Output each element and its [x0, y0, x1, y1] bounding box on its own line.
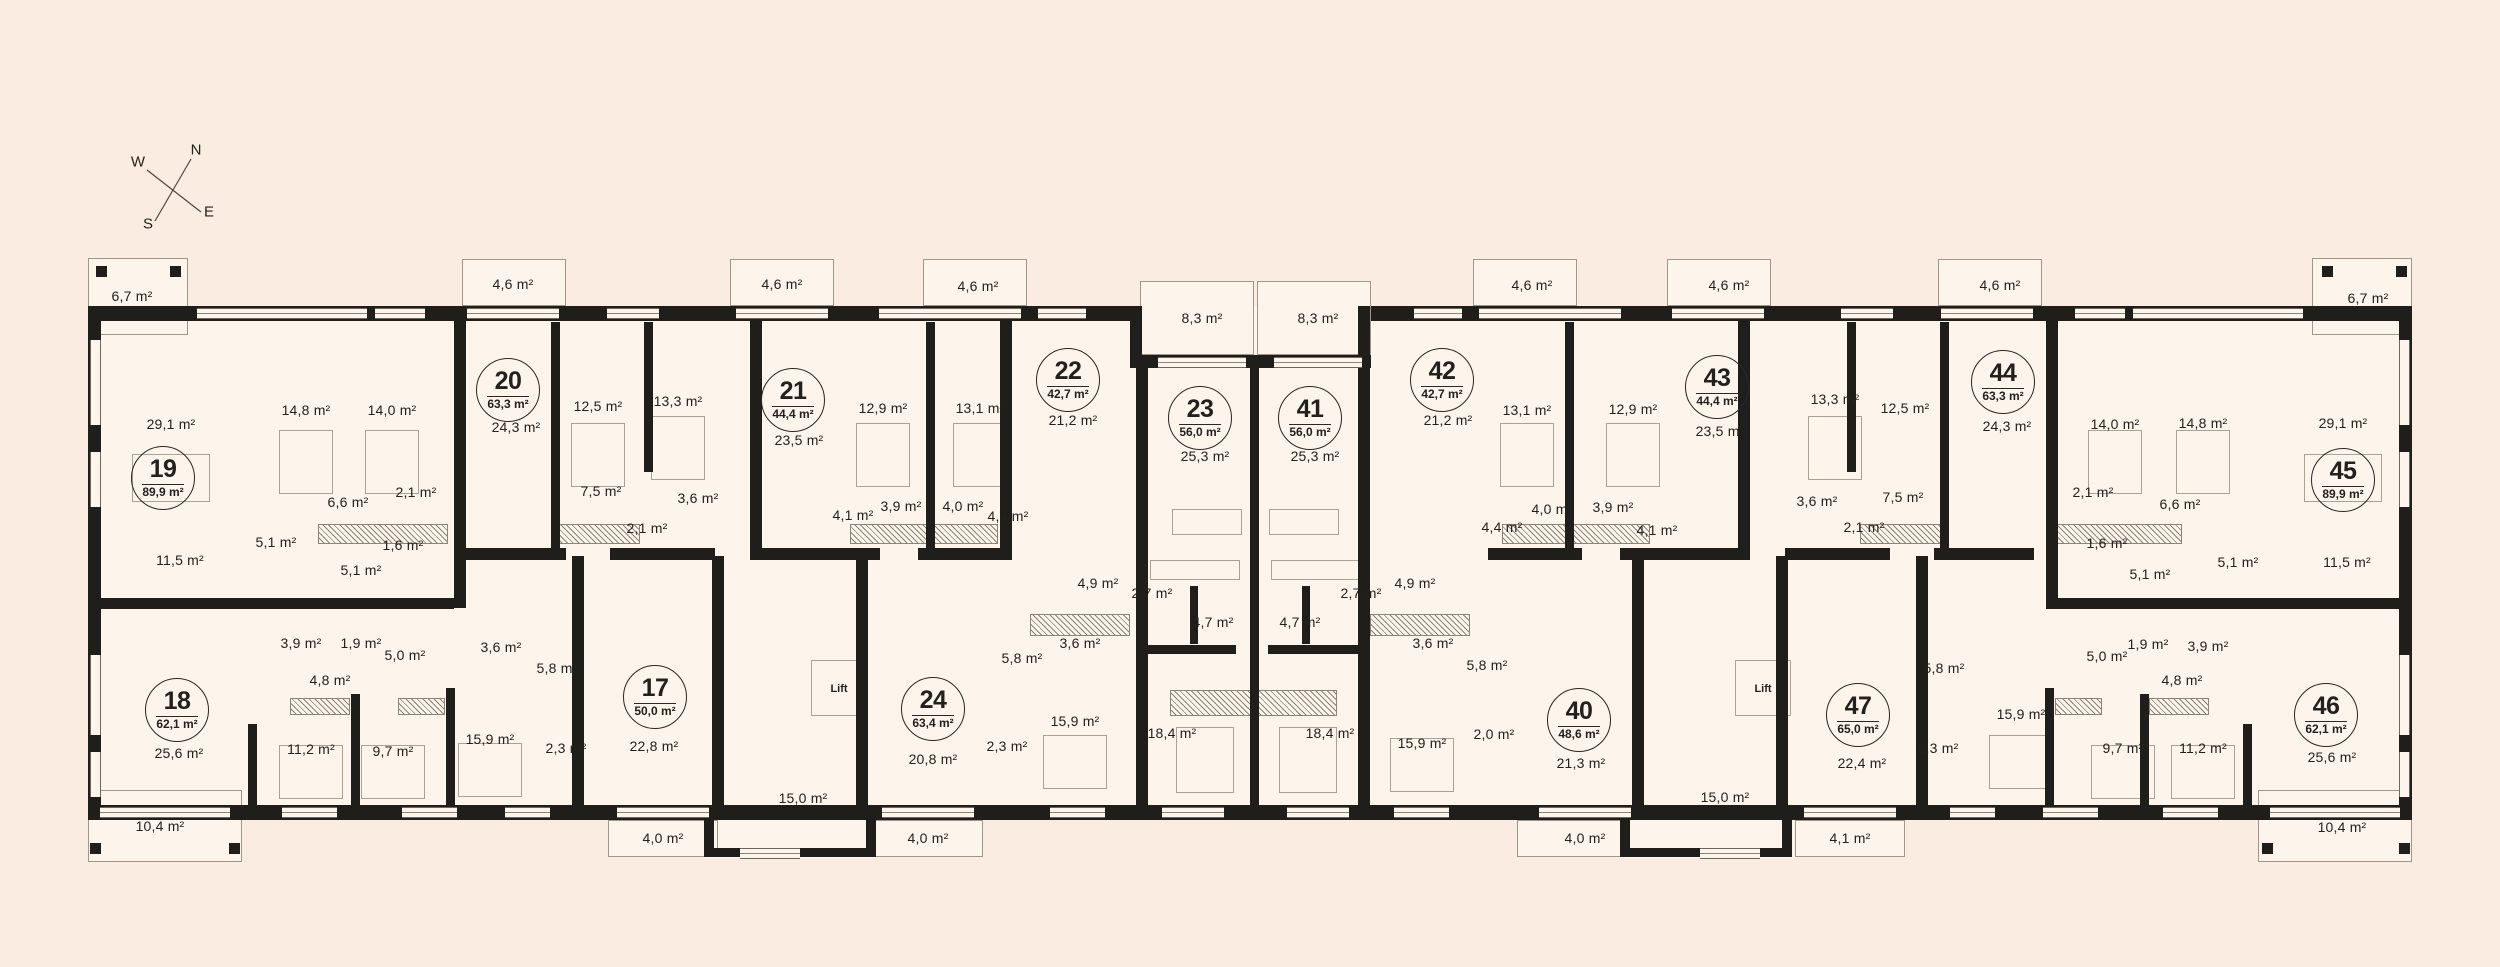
room-area-label: 8,3 m²	[1298, 310, 1339, 326]
room-area-label: 25,6 m²	[155, 745, 204, 761]
plan-line	[155, 159, 191, 221]
wall-segment	[2045, 688, 2054, 805]
plan-line	[147, 170, 201, 212]
room-area-label: 13,1 m²	[1503, 402, 1552, 418]
room-area-label: 4,6 m²	[762, 276, 803, 292]
apartment-number-badge: 2242,7 m²	[1036, 348, 1100, 412]
balcony-post	[229, 843, 240, 854]
room-area-label: 4,6 m²	[958, 278, 999, 294]
room-area-label: 14,8 m²	[282, 402, 331, 418]
room-area-label: 4,7 m²	[1193, 614, 1234, 630]
fixture-outline	[1150, 560, 1240, 580]
room-area-label: 15,0 m²	[779, 790, 828, 806]
wall-segment	[610, 548, 715, 560]
apartment-total-area: 50,0 m²	[634, 703, 675, 718]
wall-segment	[351, 694, 360, 805]
room-area-label: 12,5 m²	[1881, 400, 1930, 416]
window-symbol	[607, 308, 659, 319]
window-symbol	[2043, 807, 2098, 818]
window-symbol	[1950, 807, 1995, 818]
room-area-label: 3,6 m²	[678, 490, 719, 506]
apartment-number-badge: 4463,3 m²	[1971, 350, 2035, 414]
window-symbol	[467, 308, 559, 319]
wall-segment	[1940, 322, 1949, 548]
wall-segment	[1916, 556, 1928, 805]
room-area-label: 3,6 m²	[1060, 635, 1101, 651]
room-area-label: 5,1 m²	[2130, 566, 2171, 582]
apartment-total-area: 65,0 m²	[1837, 721, 1878, 736]
room-area-label: 4,0 m²	[1532, 501, 1573, 517]
window-symbol	[2399, 340, 2410, 425]
room-area-label: 21,2 m²	[1424, 412, 1473, 428]
compass-east-label: E	[204, 204, 214, 221]
room-area-label: 4,0 m²	[1565, 830, 1606, 846]
window-symbol	[282, 807, 337, 818]
wall-segment	[1488, 548, 1582, 560]
room-area-label: 6,7 m²	[112, 288, 153, 304]
room-area-label: 4,4 m²	[988, 508, 1029, 524]
apartment-total-area: 62,1 m²	[2305, 721, 2346, 736]
room-area-label: 3,6 m²	[1797, 493, 1838, 509]
wall-segment	[446, 688, 455, 805]
room-area-label: 4,6 m²	[493, 276, 534, 292]
room-area-label: 3,9 m²	[881, 498, 922, 514]
room-area-label: 5,8 m²	[1924, 660, 1965, 676]
apartment-total-area: 56,0 m²	[1179, 424, 1220, 439]
room-area-label: 5,1 m²	[341, 562, 382, 578]
window-symbol	[740, 848, 800, 859]
window-symbol	[1804, 807, 1896, 818]
wall-segment	[466, 548, 566, 560]
room-area-label: 6,6 m²	[328, 494, 369, 510]
window-symbol	[1841, 308, 1893, 319]
wall-segment	[2046, 598, 2399, 609]
window-symbol	[882, 807, 974, 818]
room-area-label: 14,0 m²	[2091, 416, 2140, 432]
balcony-post	[96, 266, 107, 277]
window-symbol	[1569, 308, 1621, 319]
apartment-total-area: 89,9 m²	[2322, 486, 2363, 501]
window-symbol	[1700, 848, 1760, 859]
room-area-label: 3,6 m²	[1413, 635, 1454, 651]
window-symbol	[197, 308, 367, 319]
room-area-label: 14,8 m²	[2179, 415, 2228, 431]
bed-symbol	[279, 430, 333, 494]
wall-segment	[1738, 318, 1750, 560]
window-symbol	[1672, 308, 1764, 319]
apartment-total-area: 42,7 m²	[1421, 386, 1462, 401]
room-area-label: 22,4 m²	[1838, 755, 1887, 771]
wall-segment	[1632, 556, 1644, 806]
apartment-number-badge: 2144,4 m²	[761, 368, 825, 432]
room-area-label: 15,9 m²	[1051, 713, 1100, 729]
room-area-label: 2,1 m²	[2073, 484, 2114, 500]
bed-symbol	[1043, 735, 1107, 789]
window-symbol	[736, 308, 828, 319]
room-area-label: 18,4 m²	[1148, 725, 1197, 741]
apartment-number: 19	[150, 457, 177, 482]
room-area-label: 5,8 m²	[1467, 657, 1508, 673]
room-area-label: 4,4 m²	[1482, 519, 1523, 535]
room-area-label: 2,7 m²	[1341, 585, 1382, 601]
fixture-outline	[1271, 560, 1361, 580]
room-area-label: 4,1 m²	[1830, 830, 1871, 846]
bed-symbol	[2176, 430, 2230, 494]
room-area-label: 2,7 m²	[1132, 585, 1173, 601]
room-area-label: 10,4 m²	[2318, 819, 2367, 835]
window-symbol	[90, 655, 101, 735]
window-symbol	[1479, 308, 1571, 319]
apartment-number: 20	[495, 369, 522, 394]
room-area-label: 12,5 m²	[574, 398, 623, 414]
apartment-number-badge: 2356,0 m²	[1168, 386, 1232, 450]
room-area-label: 9,7 m²	[373, 743, 414, 759]
room-area-label: 12,9 m²	[1609, 401, 1658, 417]
room-area-label: 4,6 m²	[1980, 277, 2021, 293]
room-area-label: 4,7 m²	[1280, 614, 1321, 630]
room-area-label: 10,4 m²	[136, 818, 185, 834]
apartment-number: 24	[920, 688, 947, 713]
apartment-number: 40	[1566, 699, 1593, 724]
apartment-number: 42	[1429, 359, 1456, 384]
room-area-label: 23,5 m²	[775, 432, 824, 448]
window-symbol	[90, 452, 101, 507]
wall-segment	[856, 556, 868, 806]
room-area-label: 5,0 m²	[2087, 648, 2128, 664]
room-area-label: 2,0 m²	[1474, 726, 1515, 742]
room-area-label: 15,9 m²	[1997, 706, 2046, 722]
apartment-total-area: 44,4 m²	[1696, 393, 1737, 408]
wall-segment	[1146, 645, 1236, 654]
balcony-post	[170, 266, 181, 277]
room-area-label: 12,9 m²	[859, 400, 908, 416]
room-area-label: 4,6 m²	[1709, 277, 1750, 293]
window-symbol	[1162, 807, 1224, 818]
wardrobe-hatch	[290, 698, 350, 715]
room-area-label: 3,9 m²	[281, 635, 322, 651]
bed-symbol	[1606, 423, 1660, 487]
apartment-total-area: 62,1 m²	[156, 716, 197, 731]
wardrobe-hatch	[2055, 698, 2102, 715]
apartment-number-badge: 2063,3 m²	[476, 358, 540, 422]
balcony-post	[2322, 266, 2333, 277]
room-area-label: 5,8 m²	[1002, 650, 1043, 666]
bed-symbol	[571, 423, 625, 487]
room-area-label: 4,9 m²	[1395, 575, 1436, 591]
room-area-label: 3,9 m²	[2188, 638, 2229, 654]
room-area-label: 1,6 m²	[383, 537, 424, 553]
window-symbol	[2399, 452, 2410, 507]
wardrobe-hatch	[398, 698, 445, 715]
floor-plan: N W E S 6,7 m²4,6 m²4,6 m²4,6 m²8,3 m²8,…	[0, 0, 2500, 967]
apartment-number: 44	[1990, 361, 2017, 386]
room-area-label: 11,2 m²	[287, 741, 335, 757]
window-symbol	[2399, 752, 2410, 797]
wall-segment	[1268, 645, 1359, 654]
balcony-post	[2399, 843, 2410, 854]
window-symbol	[929, 308, 1021, 319]
apartment-number: 45	[2330, 459, 2357, 484]
bed-symbol	[953, 423, 1007, 487]
window-symbol	[1394, 807, 1449, 818]
room-area-label: 25,6 m²	[2308, 749, 2357, 765]
room-area-label: 24,3 m²	[492, 419, 541, 435]
wardrobe-hatch	[1502, 524, 1650, 544]
window-symbol	[1287, 807, 1349, 818]
room-area-label: 2,3 m²	[1918, 740, 1959, 756]
window-symbol	[402, 807, 457, 818]
wardrobe-hatch	[850, 524, 998, 544]
room-area-label: 25,3 m²	[1291, 448, 1340, 464]
room-area-label: 13,3 m²	[654, 393, 703, 409]
room-area-label: 15,0 m²	[1701, 789, 1750, 805]
apartment-total-area: 48,6 m²	[1558, 726, 1599, 741]
room-area-label: 9,7 m²	[2103, 740, 2144, 756]
apartment-number-badge: 1862,1 m²	[145, 678, 209, 742]
window-symbol	[879, 308, 931, 319]
room-area-label: 29,1 m²	[2319, 415, 2368, 431]
room-area-label: 5,1 m²	[256, 534, 297, 550]
apartment-number: 21	[780, 379, 807, 404]
apartment-number-badge: 4662,1 m²	[2294, 683, 2358, 747]
balcony-post	[2396, 266, 2407, 277]
window-symbol	[1158, 357, 1246, 368]
compass-south-label: S	[143, 216, 153, 233]
wall-segment	[551, 322, 560, 548]
room-area-label: 2,1 m²	[396, 484, 437, 500]
apartment-number: 43	[1704, 366, 1731, 391]
apartment-number: 18	[164, 689, 191, 714]
room-area-label: 4,1 m²	[1637, 522, 1678, 538]
window-symbol	[1539, 807, 1631, 818]
apartment-number-badge: 4765,0 m²	[1826, 683, 1890, 747]
room-area-label: 13,1 m²	[956, 400, 1005, 416]
wall-segment	[248, 724, 257, 805]
fixture-outline	[1172, 509, 1242, 535]
room-area-label: 4,8 m²	[2162, 672, 2203, 688]
room-area-label: 21,2 m²	[1049, 412, 1098, 428]
wall-segment	[926, 322, 935, 548]
apartment-number: 41	[1297, 397, 1324, 422]
apartment-number-badge: 4048,6 m²	[1547, 688, 1611, 752]
wall-segment	[454, 318, 466, 608]
wall-segment	[1776, 556, 1788, 806]
bed-symbol	[651, 416, 705, 480]
apartment-number: 46	[2313, 694, 2340, 719]
room-area-label: 2,1 m²	[627, 520, 668, 536]
wall-segment	[101, 598, 454, 609]
room-area-label: 5,1 m²	[2218, 554, 2259, 570]
room-area-label: 8,3 m²	[1182, 310, 1223, 326]
room-area-label: 6,6 m²	[2160, 496, 2201, 512]
compass-west-label: W	[131, 154, 145, 171]
fixture-outline	[1269, 509, 1339, 535]
wall-segment	[750, 318, 762, 560]
window-symbol	[90, 340, 101, 425]
apartment-number-badge: 2463,4 m²	[901, 677, 965, 741]
window-symbol	[1050, 807, 1105, 818]
window-symbol	[1414, 308, 1462, 319]
window-symbol	[2399, 655, 2410, 735]
window-symbol	[617, 807, 709, 818]
apartment-number: 17	[642, 676, 669, 701]
room-area-label: 3,9 m²	[1593, 499, 1634, 515]
room-area-label: 11,5 m²	[156, 552, 204, 568]
apartment-number-badge: 4156,0 m²	[1278, 386, 1342, 450]
room-area-label: 14,0 m²	[368, 402, 417, 418]
wall-segment	[572, 556, 584, 805]
room-area-label: 1,6 m²	[2087, 535, 2128, 551]
room-area-label: 11,5 m²	[2323, 554, 2371, 570]
compass-north-label: N	[191, 142, 202, 159]
room-area-label: 13,3 m²	[1811, 391, 1860, 407]
window-symbol	[1038, 308, 1086, 319]
room-area-label: 23,5 m²	[1696, 423, 1745, 439]
room-area-label: 4,6 m²	[1512, 277, 1553, 293]
lift-label: Lift	[830, 683, 847, 695]
bed-symbol	[458, 743, 522, 797]
wall-segment	[1250, 366, 1259, 805]
room-area-label: 5,8 m²	[537, 660, 578, 676]
apartment-number-badge: 4589,9 m²	[2311, 448, 2375, 512]
room-area-label: 11,2 m²	[2179, 740, 2227, 756]
apartment-total-area: 63,4 m²	[912, 715, 953, 730]
window-symbol	[505, 807, 550, 818]
window-symbol	[90, 752, 101, 797]
room-area-label: 4,0 m²	[908, 830, 949, 846]
wall-segment	[2046, 318, 2058, 608]
room-area-label: 15,9 m²	[1398, 735, 1447, 751]
balcony-post	[2262, 843, 2273, 854]
room-area-label: 1,9 m²	[341, 635, 382, 651]
room-area-label: 2,3 m²	[987, 738, 1028, 754]
wall-segment	[644, 322, 653, 472]
window-symbol	[2075, 308, 2125, 319]
bed-symbol	[856, 423, 910, 487]
apartment-number: 23	[1187, 397, 1214, 422]
wall-segment	[1934, 548, 2034, 560]
room-area-label: 18,4 m²	[1306, 725, 1355, 741]
room-area-label: 4,1 m²	[833, 507, 874, 523]
room-area-label: 7,5 m²	[581, 483, 622, 499]
room-area-label: 2,1 m²	[1844, 519, 1885, 535]
balcony-post	[90, 843, 101, 854]
room-area-label: 21,3 m²	[1557, 755, 1606, 771]
window-symbol	[1274, 357, 1362, 368]
room-area-label: 25,3 m²	[1181, 448, 1230, 464]
room-area-label: 5,0 m²	[385, 647, 426, 663]
window-symbol	[1941, 308, 2033, 319]
apartment-number: 47	[1845, 694, 1872, 719]
apartment-total-area: 44,4 m²	[772, 406, 813, 421]
window-symbol	[2133, 308, 2303, 319]
apartment-number-badge: 4344,4 m²	[1685, 355, 1749, 419]
room-area-label: 3,6 m²	[481, 639, 522, 655]
wall-segment	[1785, 548, 1890, 560]
wardrobe-hatch	[1370, 614, 1470, 636]
bed-symbol	[1989, 735, 2053, 789]
room-area-label: 24,3 m²	[1983, 418, 2032, 434]
window-symbol	[100, 807, 230, 818]
room-area-label: 4,0 m²	[943, 498, 984, 514]
wall-segment	[712, 556, 724, 806]
apartment-number: 22	[1055, 359, 1082, 384]
room-area-label: 29,1 m²	[147, 416, 196, 432]
wardrobe-hatch	[2149, 698, 2209, 715]
window-symbol	[375, 308, 425, 319]
window-symbol	[2270, 807, 2400, 818]
room-area-label: 22,8 m²	[630, 738, 679, 754]
room-area-label: 15,9 m²	[466, 731, 515, 747]
apartment-total-area: 56,0 m²	[1289, 424, 1330, 439]
apartment-number-badge: 1989,9 m²	[131, 446, 195, 510]
room-area-label: 4,8 m²	[310, 672, 351, 688]
wardrobe-hatch	[1030, 614, 1130, 636]
apartment-number-badge: 4242,7 m²	[1410, 348, 1474, 412]
room-area-label: 6,7 m²	[2348, 290, 2389, 306]
wall-segment	[2243, 724, 2252, 805]
apartment-total-area: 42,7 m²	[1047, 386, 1088, 401]
room-area-label: 2,3 m²	[546, 740, 587, 756]
bed-symbol	[1500, 423, 1554, 487]
wall-segment	[918, 548, 1012, 560]
lift-label: Lift	[1754, 683, 1771, 695]
room-area-label: 4,0 m²	[643, 830, 684, 846]
window-symbol	[2163, 807, 2218, 818]
apartment-total-area: 63,3 m²	[487, 396, 528, 411]
wall-segment	[1130, 306, 1142, 368]
room-area-label: 4,9 m²	[1078, 575, 1119, 591]
room-area-label: 1,9 m²	[2128, 636, 2169, 652]
room-area-label: 7,5 m²	[1883, 489, 1924, 505]
apartment-total-area: 89,9 m²	[142, 484, 183, 499]
apartment-number-badge: 1750,0 m²	[623, 665, 687, 729]
room-area-label: 20,8 m²	[909, 751, 958, 767]
apartment-total-area: 63,3 m²	[1982, 388, 2023, 403]
